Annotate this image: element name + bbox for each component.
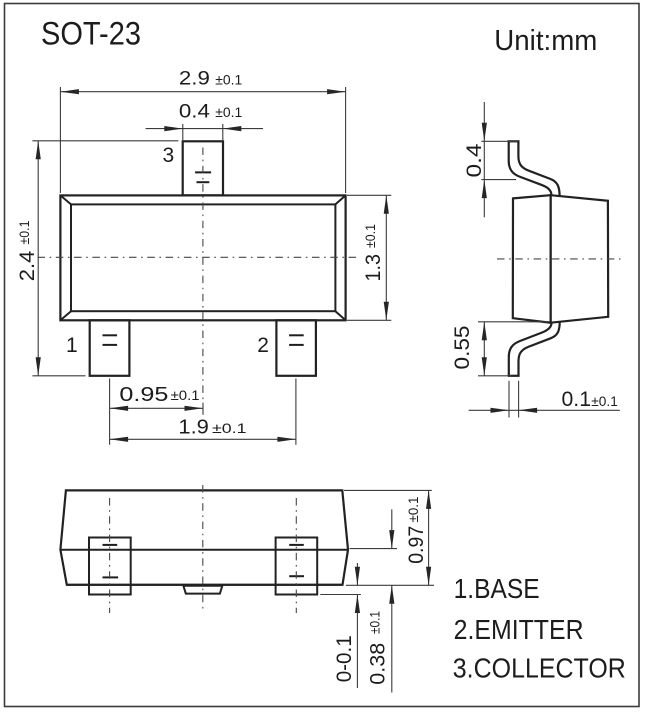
svg-text:Unit:mm: Unit:mm — [494, 25, 597, 57]
svg-text:0.4: 0.4 — [463, 143, 486, 177]
svg-text:0.97: 0.97 — [405, 526, 428, 564]
svg-text:1: 1 — [66, 334, 78, 357]
svg-text:0-0.1: 0-0.1 — [333, 635, 356, 682]
svg-text:0.1: 0.1 — [562, 388, 592, 411]
svg-text:3.COLLECTOR: 3.COLLECTOR — [453, 652, 626, 683]
svg-text:±0.1: ±0.1 — [215, 104, 242, 120]
svg-text:±0.1: ±0.1 — [367, 611, 383, 634]
svg-text:±0.1: ±0.1 — [215, 71, 242, 87]
svg-text:±0.1: ±0.1 — [405, 496, 421, 522]
svg-text:±0.1: ±0.1 — [171, 387, 200, 403]
svg-text:±0.1: ±0.1 — [212, 420, 247, 436]
svg-text:1.BASE: 1.BASE — [454, 573, 540, 604]
svg-text:2.9: 2.9 — [179, 68, 210, 90]
svg-text:1.9: 1.9 — [178, 417, 209, 439]
svg-text:1.3: 1.3 — [362, 254, 385, 282]
svg-text:0.38: 0.38 — [367, 643, 390, 685]
svg-text:SOT-23: SOT-23 — [41, 16, 141, 52]
svg-text:2.EMITTER: 2.EMITTER — [454, 614, 584, 645]
svg-text:2.4: 2.4 — [16, 250, 39, 281]
svg-text:0.95: 0.95 — [119, 384, 168, 406]
svg-text:0.4: 0.4 — [179, 100, 210, 122]
svg-text:3: 3 — [163, 144, 175, 167]
svg-text:±0.1: ±0.1 — [16, 220, 32, 244]
svg-text:2: 2 — [257, 334, 269, 357]
svg-text:±0.1: ±0.1 — [362, 224, 378, 248]
svg-text:0.55: 0.55 — [451, 326, 474, 370]
svg-text:±0.1: ±0.1 — [591, 393, 618, 409]
